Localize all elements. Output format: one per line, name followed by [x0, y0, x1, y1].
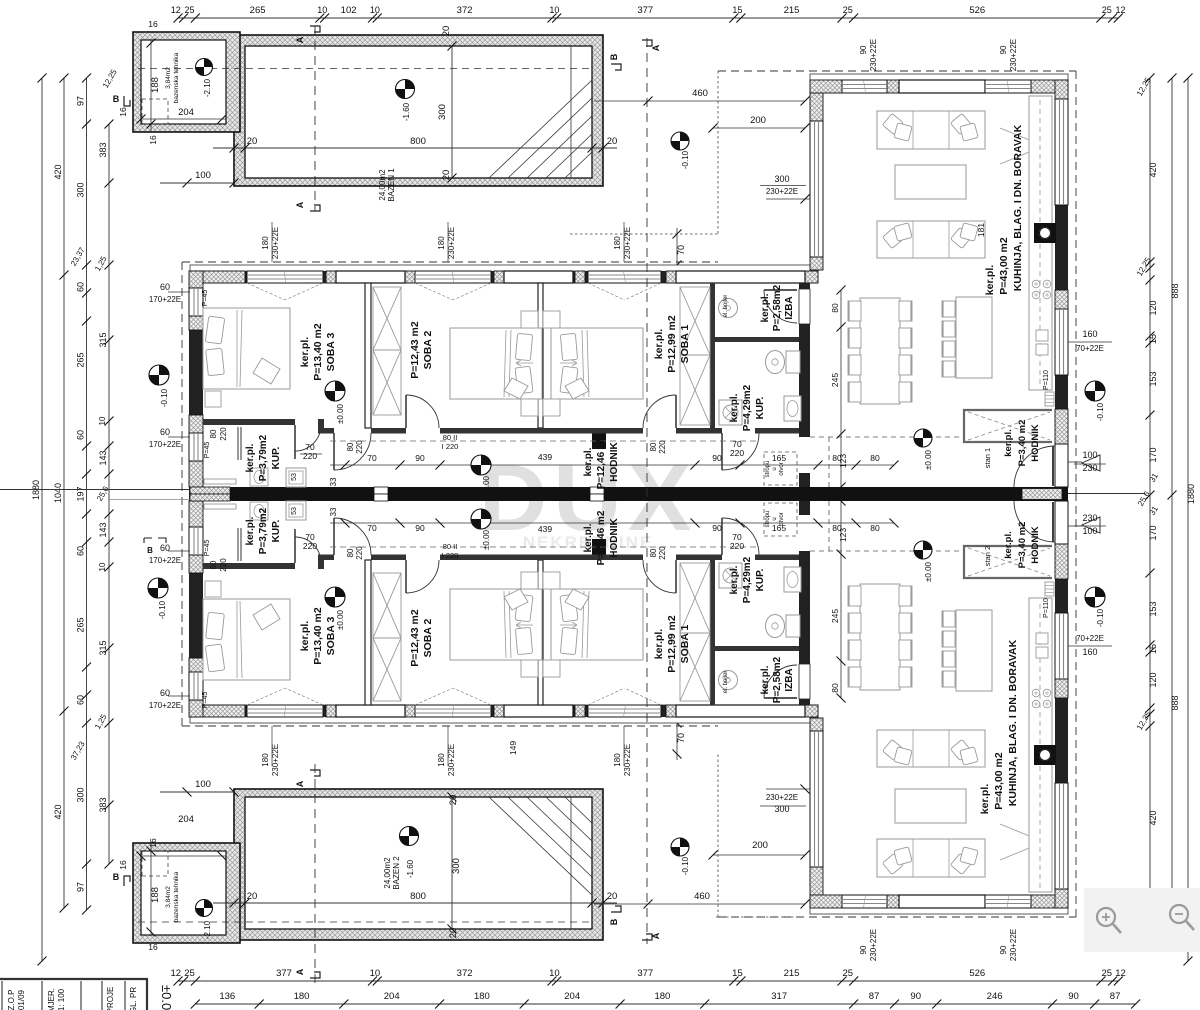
svg-text:BAZEN 1: BAZEN 1 [387, 168, 396, 202]
svg-text:87: 87 [1110, 991, 1121, 1002]
svg-text:1040: 1040 [53, 483, 63, 503]
svg-text:±0.00: ±0.00 [924, 449, 933, 470]
svg-text:B: B [609, 918, 619, 925]
svg-text:317: 317 [771, 991, 787, 1002]
svg-text:70: 70 [367, 453, 377, 463]
svg-text:300: 300 [76, 182, 86, 197]
svg-text:u: u [772, 517, 778, 520]
svg-text:A: A [295, 36, 305, 43]
svg-text:526: 526 [969, 5, 985, 16]
svg-text:80 II: 80 II [443, 542, 458, 551]
svg-text:800: 800 [410, 891, 426, 902]
svg-text:420: 420 [53, 804, 63, 819]
svg-text:15: 15 [732, 5, 742, 15]
svg-text:B: B [609, 53, 619, 60]
svg-text:20: 20 [607, 136, 618, 147]
svg-text:ker.pl.: ker.pl. [760, 293, 771, 322]
svg-text:70: 70 [367, 523, 377, 533]
svg-text:P=4,29m2: P=4,29m2 [742, 556, 753, 603]
svg-text:-0.10: -0.10 [1096, 402, 1105, 421]
svg-text:12: 12 [171, 968, 182, 979]
svg-text:KUP.: KUP. [271, 519, 282, 542]
svg-text:888: 888 [1170, 283, 1180, 298]
svg-text:KUP.: KUP. [755, 568, 766, 591]
svg-text:80: 80 [830, 683, 840, 693]
svg-text:P=12,46 m2: P=12,46 m2 [596, 434, 607, 489]
svg-text:377: 377 [637, 968, 653, 979]
svg-text:33: 33 [329, 477, 338, 486]
svg-text:ker.pl.: ker.pl. [653, 629, 665, 659]
svg-text:PROJE: PROJE [106, 987, 115, 1010]
svg-text:P=3,79m2: P=3,79m2 [258, 507, 269, 554]
svg-text:SOBA 3: SOBA 3 [325, 332, 337, 371]
svg-text:-0.10: -0.10 [681, 150, 690, 169]
svg-text:1,25: 1,25 [93, 254, 109, 272]
svg-text:P=2,58m2: P=2,58m2 [772, 656, 783, 703]
svg-text:165: 165 [772, 453, 786, 463]
svg-text:80 II: 80 II [443, 433, 458, 442]
svg-text:10: 10 [98, 562, 107, 571]
svg-text:204: 204 [564, 991, 580, 1002]
svg-text:P=110: P=110 [1043, 598, 1050, 618]
svg-text:P=45: P=45 [204, 442, 211, 459]
svg-text:-1.60: -1.60 [402, 102, 411, 121]
svg-text:IZBA: IZBA [784, 668, 795, 691]
svg-text:439: 439 [538, 452, 552, 462]
svg-text:180: 180 [437, 753, 446, 767]
svg-text:215: 215 [784, 968, 800, 979]
svg-text:97: 97 [76, 96, 86, 106]
svg-text:A: A [295, 968, 305, 975]
svg-text:90: 90 [415, 453, 425, 463]
svg-text:100: 100 [1082, 450, 1097, 460]
svg-text:220: 220 [303, 541, 317, 551]
svg-text:P=45: P=45 [202, 692, 209, 709]
svg-text:-0.10: -0.10 [681, 856, 690, 875]
svg-text:A: A [651, 44, 661, 51]
svg-text:300: 300 [774, 804, 789, 814]
svg-text:12: 12 [1115, 5, 1125, 15]
svg-text:220: 220 [355, 440, 364, 454]
svg-text:300: 300 [774, 174, 789, 184]
svg-text:100: 100 [195, 779, 211, 790]
svg-text:20: 20 [448, 928, 459, 939]
svg-text:100: 100 [1082, 526, 1097, 536]
svg-text:170+22E: 170+22E [149, 295, 181, 304]
svg-text:120: 120 [1148, 300, 1158, 315]
svg-text:bazenska tehnika: bazenska tehnika [173, 871, 180, 922]
svg-text:180: 180 [654, 991, 670, 1002]
svg-text:±0.00: ±0.00 [482, 529, 491, 550]
svg-text:SOBA 2: SOBA 2 [422, 330, 434, 369]
svg-text:136: 136 [219, 991, 235, 1002]
svg-text:±0.00: ±0.00 [336, 609, 345, 630]
svg-text:90: 90 [712, 523, 722, 533]
svg-text:A: A [295, 780, 305, 787]
svg-text:90: 90 [1068, 991, 1079, 1002]
svg-text:MJER.: MJER. [47, 988, 56, 1010]
svg-text:245: 245 [830, 609, 840, 623]
svg-text:±0.00: ±0.00 [924, 561, 933, 582]
svg-text:460: 460 [694, 891, 710, 902]
svg-text:ker.pl.: ker.pl. [760, 665, 771, 694]
svg-text:80: 80 [346, 442, 355, 451]
svg-text:25: 25 [843, 968, 854, 979]
svg-text:170+22E: 170+22E [149, 556, 181, 565]
svg-text:180: 180 [294, 991, 310, 1002]
svg-text:33: 33 [329, 507, 338, 516]
svg-text:60: 60 [160, 688, 170, 698]
svg-text:20: 20 [607, 891, 618, 902]
svg-text:372: 372 [457, 968, 473, 979]
svg-text:97: 97 [76, 882, 86, 892]
svg-text:25: 25 [184, 5, 194, 15]
svg-text:230+22E: 230+22E [766, 187, 798, 196]
svg-text:15: 15 [1148, 334, 1158, 344]
svg-text:80: 80 [209, 560, 218, 569]
svg-text:197: 197 [76, 486, 86, 501]
svg-text:-0.10: -0.10 [160, 388, 169, 407]
svg-text:GL. PR: GL. PR [129, 987, 138, 1010]
svg-text:P=110: P=110 [1043, 370, 1050, 390]
svg-text:ker.pl.: ker.pl. [299, 337, 311, 367]
svg-text:KUHINJA, BLAG. I DN. BORAVAK: KUHINJA, BLAG. I DN. BORAVAK [1012, 124, 1024, 291]
svg-text:P=13,40 m2: P=13,40 m2 [312, 323, 324, 381]
svg-text:ker.pl.: ker.pl. [245, 516, 256, 545]
svg-text:220: 220 [355, 546, 364, 560]
svg-text:383: 383 [98, 142, 108, 157]
svg-text:3,84m2: 3,84m2 [165, 67, 172, 89]
svg-text:A: A [651, 932, 661, 939]
svg-text:53: 53 [291, 507, 298, 515]
svg-text:±0.00: ±0.00 [482, 475, 491, 496]
svg-text:20: 20 [247, 891, 258, 902]
svg-text:ker.pl.: ker.pl. [1003, 531, 1014, 558]
svg-text:265: 265 [250, 5, 266, 16]
svg-text:160: 160 [1082, 647, 1097, 657]
svg-text:265: 265 [76, 617, 86, 632]
svg-text:180: 180 [261, 236, 270, 250]
svg-text:70+22E: 70+22E [1076, 634, 1104, 643]
svg-text:10: 10 [549, 968, 560, 979]
svg-text:90: 90 [999, 45, 1008, 54]
svg-text:180: 180 [474, 991, 490, 1002]
svg-text:25: 25 [1102, 5, 1112, 15]
svg-text:ker.pl.: ker.pl. [1003, 429, 1014, 456]
svg-text:420: 420 [1148, 810, 1158, 825]
svg-text:otvor: otvor [779, 462, 785, 475]
svg-text:stan 2: stan 2 [983, 546, 992, 566]
svg-text:P=45: P=45 [204, 540, 211, 557]
svg-text:20: 20 [441, 26, 452, 37]
svg-text:80: 80 [649, 442, 658, 451]
svg-text:B: B [113, 872, 120, 882]
svg-text:230: 230 [1082, 513, 1097, 523]
svg-text:377: 377 [637, 5, 653, 16]
svg-text:300: 300 [76, 787, 86, 802]
svg-text:90: 90 [910, 991, 921, 1002]
svg-text:60: 60 [160, 427, 170, 437]
svg-text:ker.pl.: ker.pl. [979, 784, 991, 814]
svg-text:±0.0: ±0.0 [159, 985, 174, 1010]
svg-text:B: B [113, 94, 120, 104]
svg-text:170: 170 [1148, 447, 1158, 462]
svg-text:90: 90 [859, 45, 868, 54]
svg-text:90: 90 [415, 523, 425, 533]
svg-text:ker.pl.: ker.pl. [299, 621, 311, 651]
svg-text:P=2,58m2: P=2,58m2 [772, 284, 783, 331]
svg-text:16: 16 [148, 942, 158, 952]
svg-text:16: 16 [148, 838, 158, 848]
svg-text:KUP.: KUP. [755, 396, 766, 419]
svg-text:16: 16 [148, 19, 158, 29]
svg-text:220: 220 [730, 541, 744, 551]
svg-text:-2.10: -2.10 [203, 920, 212, 939]
svg-text:24,00m2: 24,00m2 [378, 169, 387, 201]
svg-text:70: 70 [676, 245, 686, 255]
svg-text:60: 60 [76, 695, 86, 705]
svg-text:170: 170 [1148, 525, 1158, 540]
svg-text:526: 526 [969, 968, 985, 979]
svg-text:460: 460 [692, 88, 708, 99]
svg-text:53: 53 [291, 473, 298, 481]
svg-text:1: 100: 1: 100 [57, 988, 66, 1010]
svg-text:15: 15 [732, 968, 743, 979]
svg-text:220: 220 [219, 427, 228, 441]
svg-text:420: 420 [1148, 162, 1158, 177]
svg-text:A: A [295, 201, 305, 208]
svg-text:70: 70 [676, 733, 686, 743]
svg-text:±0.00: ±0.00 [336, 403, 345, 424]
svg-text:60: 60 [76, 546, 86, 556]
svg-text:60: 60 [76, 430, 86, 440]
svg-text:170+22E: 170+22E [149, 440, 181, 449]
svg-text:230+22E: 230+22E [1009, 39, 1018, 71]
svg-text:I 220: I 220 [442, 442, 459, 451]
svg-text:245: 245 [830, 373, 840, 387]
svg-text:315: 315 [98, 640, 108, 655]
svg-text:1880: 1880 [1186, 484, 1196, 504]
svg-text:Z.O.P: Z.O.P [7, 990, 16, 1010]
svg-text:149: 149 [508, 741, 518, 755]
svg-text:16: 16 [118, 107, 128, 117]
svg-text:90: 90 [999, 945, 1008, 954]
svg-text:BAZEN 2: BAZEN 2 [392, 856, 401, 890]
svg-text:230: 230 [1082, 463, 1097, 473]
svg-text:10: 10 [370, 5, 380, 15]
svg-text:20: 20 [448, 795, 459, 806]
svg-text:ker.pl.: ker.pl. [583, 523, 594, 552]
svg-text:204: 204 [178, 107, 194, 118]
svg-text:KUHINJA, BLAG. I DN. BORAVAK: KUHINJA, BLAG. I DN. BORAVAK [1007, 639, 1019, 806]
svg-text:220: 220 [658, 440, 667, 454]
svg-text:IZBA: IZBA [784, 296, 795, 319]
svg-text:80: 80 [649, 548, 658, 557]
svg-text:HODNIK: HODNIK [609, 442, 620, 482]
svg-text:180: 180 [613, 753, 622, 767]
svg-text:1,25: 1,25 [93, 712, 109, 730]
svg-text:-2.10: -2.10 [203, 78, 212, 97]
svg-text:315: 315 [98, 332, 108, 347]
svg-text:25: 25 [1102, 968, 1113, 979]
svg-text:188: 188 [150, 77, 161, 93]
svg-text:180: 180 [437, 236, 446, 250]
svg-text:1880: 1880 [31, 480, 41, 500]
svg-text:B: B [147, 546, 153, 555]
svg-text:215: 215 [784, 5, 800, 16]
svg-text:800: 800 [410, 136, 426, 147]
svg-text:123: 123 [838, 528, 848, 542]
svg-text:ker.pl.: ker.pl. [653, 329, 665, 359]
svg-text:100: 100 [195, 170, 211, 181]
svg-text:230+22E: 230+22E [869, 39, 878, 71]
svg-text:230+22E: 230+22E [1009, 929, 1018, 961]
svg-text:439: 439 [538, 524, 552, 534]
svg-text:KUP.: KUP. [271, 446, 282, 469]
svg-text:stropu: stropu [765, 511, 771, 528]
svg-text:P=12,99 m2: P=12,99 m2 [666, 315, 678, 373]
svg-text:el. bojler: el. bojler [723, 671, 729, 694]
svg-text:P=13,40 m2: P=13,40 m2 [312, 607, 324, 665]
svg-text:SOBA 1: SOBA 1 [679, 624, 691, 663]
svg-text:12: 12 [171, 5, 181, 15]
svg-text:ker.pl.: ker.pl. [729, 565, 740, 594]
svg-text:143: 143 [98, 522, 108, 537]
svg-text:P=43,00 m2: P=43,00 m2 [998, 237, 1010, 295]
svg-text:265: 265 [76, 352, 86, 367]
svg-text:181: 181 [976, 223, 986, 237]
svg-text:P=3,79m2: P=3,79m2 [258, 434, 269, 481]
svg-text:383: 383 [98, 797, 108, 812]
svg-text:204: 204 [384, 991, 400, 1002]
svg-text:10: 10 [370, 968, 381, 979]
svg-text:P=3,40 m2: P=3,40 m2 [1017, 522, 1028, 569]
svg-text:25,6: 25,6 [1136, 489, 1152, 507]
svg-text:153: 153 [1148, 371, 1158, 386]
svg-text:80: 80 [870, 523, 880, 533]
svg-text:188: 188 [150, 887, 161, 903]
svg-text:180: 180 [261, 753, 270, 767]
svg-text:220: 220 [730, 448, 744, 458]
svg-text:P=12,99 m2: P=12,99 m2 [666, 615, 678, 673]
svg-text:80: 80 [830, 303, 840, 313]
svg-text:HODNIK: HODNIK [609, 518, 620, 558]
svg-text:153: 153 [1148, 601, 1158, 616]
svg-text:stropu: stropu [765, 461, 771, 478]
svg-text:10: 10 [98, 416, 107, 425]
svg-text:P=45: P=45 [202, 290, 209, 307]
svg-text:ker.pl.: ker.pl. [245, 443, 256, 472]
svg-text:stan 1: stan 1 [983, 448, 992, 468]
svg-text:23,37: 23,37 [69, 245, 87, 267]
svg-text:ker.pl.: ker.pl. [729, 393, 740, 422]
svg-text:20: 20 [247, 136, 258, 147]
svg-text:P=43,00 m2: P=43,00 m2 [993, 752, 1005, 810]
svg-text:-1.60: -1.60 [406, 859, 415, 878]
svg-text:420: 420 [53, 164, 63, 179]
svg-text:220: 220 [219, 558, 228, 572]
svg-text:37,23: 37,23 [69, 739, 87, 761]
svg-text:15: 15 [1148, 644, 1158, 654]
svg-text:bazenska tehnika: bazenska tehnika [173, 52, 180, 103]
svg-text:-0.10: -0.10 [158, 600, 167, 619]
svg-text:25: 25 [184, 968, 195, 979]
svg-text:230+22E: 230+22E [766, 793, 798, 802]
svg-text:P=4,29m2: P=4,29m2 [742, 384, 753, 431]
svg-text:10: 10 [549, 5, 559, 15]
svg-text:204: 204 [178, 814, 194, 825]
svg-text:888: 888 [1170, 695, 1180, 710]
svg-text:20: 20 [441, 170, 452, 181]
svg-text:160: 160 [1082, 329, 1097, 339]
svg-text:120: 120 [1148, 672, 1158, 687]
svg-text:230+22E: 230+22E [869, 929, 878, 961]
svg-text:180: 180 [613, 236, 622, 250]
svg-text:220: 220 [658, 546, 667, 560]
svg-text:24,00m2: 24,00m2 [383, 857, 392, 889]
svg-text:70+22E: 70+22E [1076, 344, 1104, 353]
svg-text:90: 90 [712, 453, 722, 463]
svg-text:P=12,43 m2: P=12,43 m2 [409, 609, 421, 667]
svg-text:372: 372 [457, 5, 473, 16]
svg-text:220: 220 [303, 451, 317, 461]
svg-text:HODNIK: HODNIK [1030, 526, 1041, 564]
svg-text:-0.10: -0.10 [1096, 608, 1105, 627]
svg-text:ker.pl.: ker.pl. [984, 265, 996, 295]
svg-text:246: 246 [987, 991, 1003, 1002]
svg-text:16: 16 [118, 860, 128, 870]
svg-text:25,6: 25,6 [95, 484, 111, 502]
svg-text:143: 143 [98, 450, 108, 465]
svg-text:377: 377 [276, 968, 292, 979]
svg-text:200: 200 [752, 840, 768, 851]
svg-text:165: 165 [772, 523, 786, 533]
svg-text:el. bojler: el. bojler [723, 295, 729, 318]
svg-text:80: 80 [870, 453, 880, 463]
svg-text:3,84m2: 3,84m2 [165, 886, 172, 908]
svg-text:200: 200 [750, 115, 766, 126]
svg-text:80: 80 [209, 429, 218, 438]
svg-text:12: 12 [1115, 968, 1126, 979]
svg-text:I 220: I 220 [442, 551, 459, 560]
svg-text:10: 10 [317, 5, 327, 15]
svg-text:ker.pl.: ker.pl. [583, 447, 594, 476]
svg-text:12,25: 12,25 [101, 67, 119, 89]
svg-text:300: 300 [451, 858, 462, 874]
svg-text:87: 87 [869, 991, 880, 1002]
svg-text:80: 80 [346, 548, 355, 557]
svg-text:SOBA 1: SOBA 1 [679, 324, 691, 363]
svg-text:16: 16 [148, 135, 158, 145]
svg-text:P=3,40 m2: P=3,40 m2 [1017, 420, 1028, 467]
svg-text:25: 25 [843, 5, 853, 15]
svg-text:SOBA 2: SOBA 2 [422, 618, 434, 657]
svg-text:P=12,46 m2: P=12,46 m2 [596, 510, 607, 565]
svg-text:300: 300 [437, 104, 448, 120]
svg-text:01/09: 01/09 [17, 989, 26, 1010]
svg-text:60: 60 [160, 282, 170, 292]
svg-text:90: 90 [859, 945, 868, 954]
svg-text:170+22E: 170+22E [149, 701, 181, 710]
svg-text:123: 123 [838, 454, 848, 468]
svg-text:u: u [772, 467, 778, 470]
svg-text:HODNIK: HODNIK [1030, 424, 1041, 462]
svg-text:P=12,43 m2: P=12,43 m2 [409, 321, 421, 379]
svg-text:102: 102 [341, 5, 357, 16]
svg-text:60: 60 [160, 543, 170, 553]
svg-text:60: 60 [76, 282, 86, 292]
